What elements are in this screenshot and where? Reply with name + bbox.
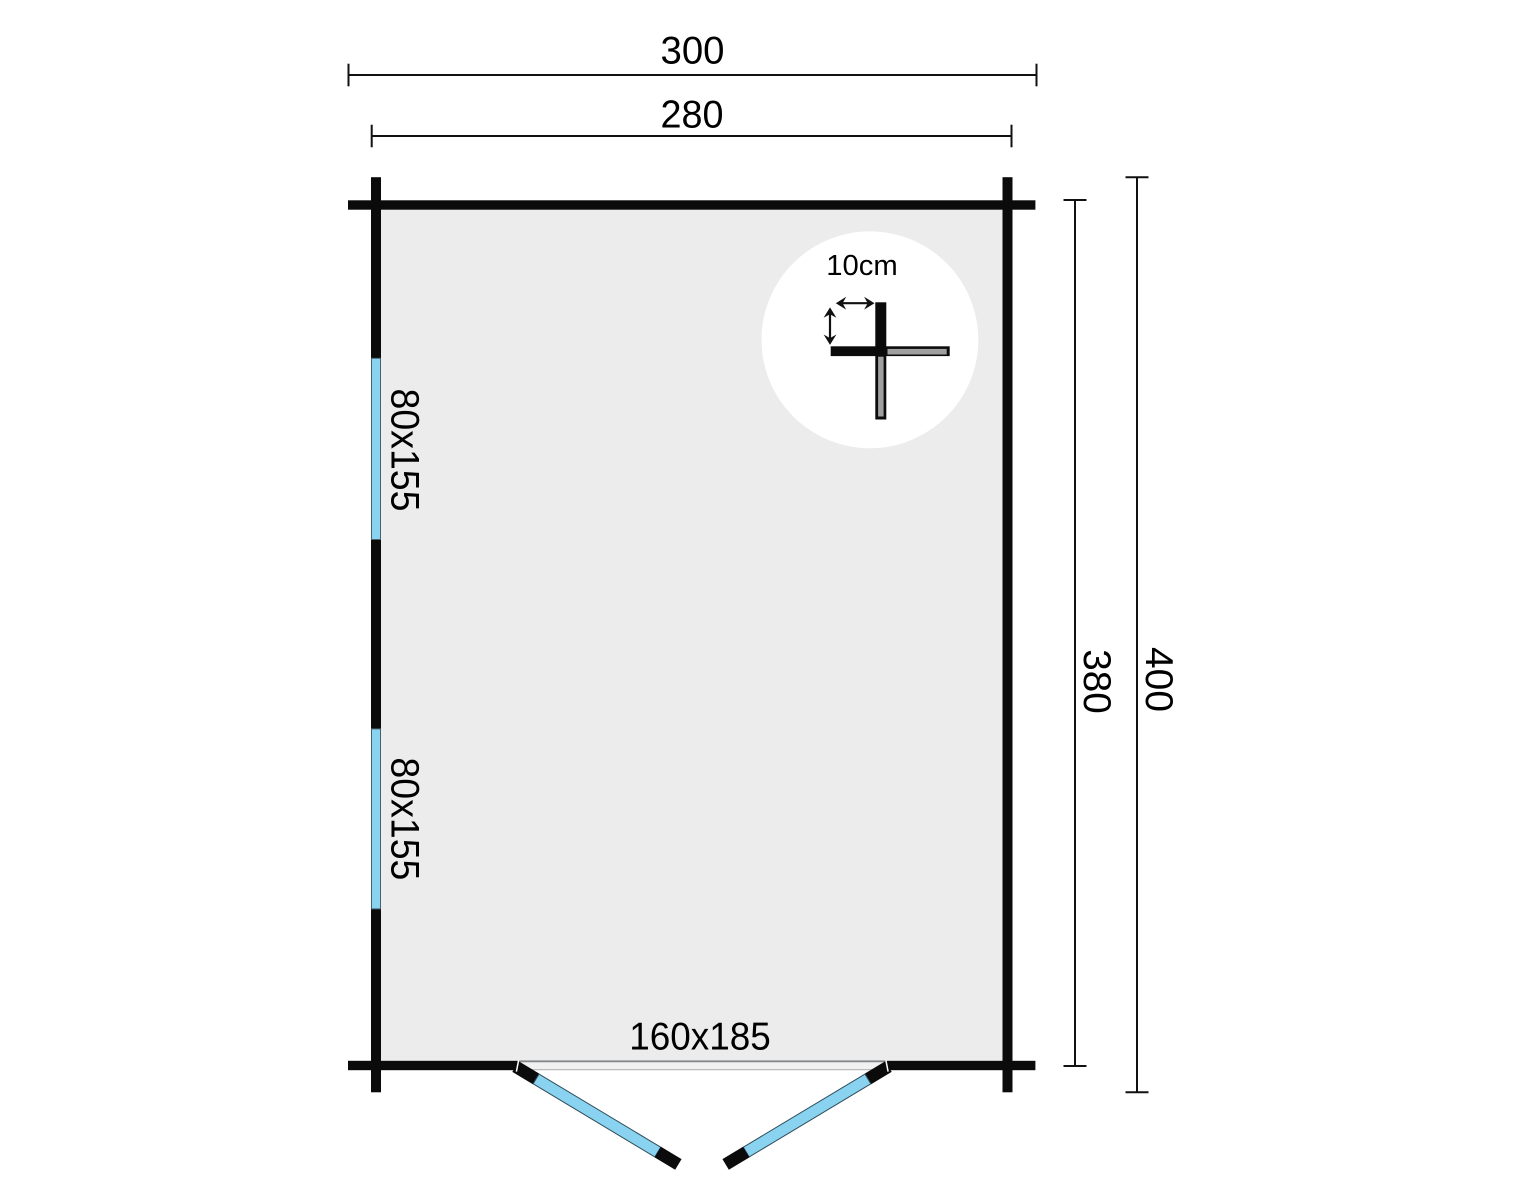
svg-text:300: 300	[661, 29, 725, 72]
svg-text:400: 400	[1137, 647, 1180, 712]
svg-text:380: 380	[1075, 649, 1118, 714]
svg-text:160x185: 160x185	[629, 1016, 771, 1059]
svg-text:80x155: 80x155	[382, 389, 426, 512]
svg-text:280: 280	[661, 93, 724, 136]
svg-text:10cm: 10cm	[826, 250, 898, 282]
svg-text:80x155: 80x155	[382, 757, 426, 880]
